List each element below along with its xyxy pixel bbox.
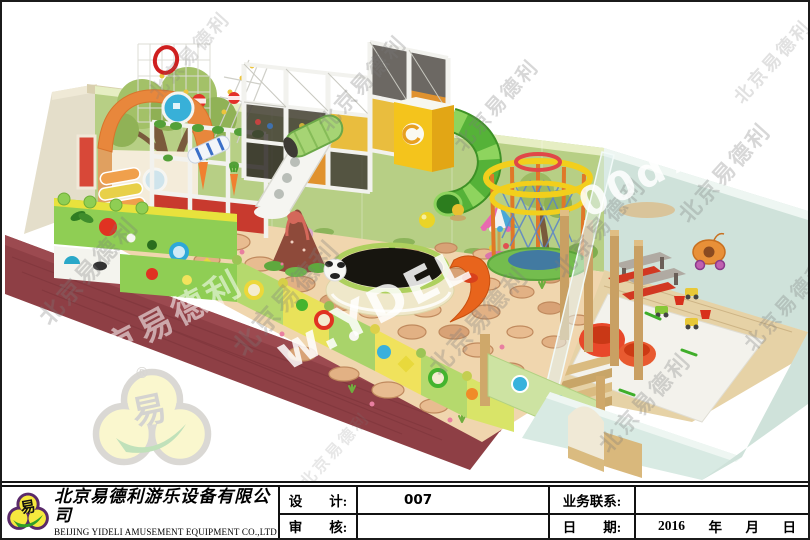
company-logo: 易 [7,489,49,537]
date-label: 日 期: [548,513,634,539]
date-year: 2016 [658,518,685,534]
contact-label: 业务联系: [548,487,634,513]
title-block-fields: 设 计: 007 业务联系: 审 核: 日 期: 2016 年 月 日 [280,487,808,538]
porthole [144,169,166,191]
design-value: 007 [356,487,548,513]
title-block: 易 北京易德利游乐设备有限公司 BEIJING YIDELI AMUSEMENT… [2,485,808,538]
company-logo-char: 易 [19,496,37,516]
company-names: 北京易德利游乐设备有限公司 BEIJING YIDELI AMUSEMENT E… [54,488,278,537]
playground-render: 易 ® 北京易德利 北京易德利 北京易德利 北京易德利 北京易德利 北京易德利 … [2,2,808,483]
design-label: 设 计: [280,487,356,513]
drawing-area-border [2,481,808,483]
date-year-unit: 年 [709,516,723,536]
review-value [356,513,548,539]
round-trampoline [326,245,454,316]
registered-mark: ® [135,364,150,382]
date-month-unit: 月 [746,516,760,536]
date-value: 2016 年 月 日 [634,513,808,539]
design-sheet: 易 ® 北京易德利 北京易德利 北京易德利 北京易德利 北京易德利 北京易德利 … [0,0,810,540]
slide-tower [394,97,454,172]
company-cell: 易 北京易德利游乐设备有限公司 BEIJING YIDELI AMUSEMENT… [2,487,280,538]
panda-ball [324,259,346,281]
contact-value [634,487,808,513]
date-day-unit: 日 [783,516,797,536]
company-name-cn: 北京易德利游乐设备有限公司 [54,488,278,525]
playground-scene: 易 ® [2,2,808,483]
review-label: 审 核: [280,513,356,539]
sand-mural [619,202,675,218]
watermark-logo: 易 ® [96,364,208,462]
red-panel [78,136,95,188]
company-name-en: BEIJING YIDELI AMUSEMENT EQUIPMENT CO.,L… [54,527,278,537]
